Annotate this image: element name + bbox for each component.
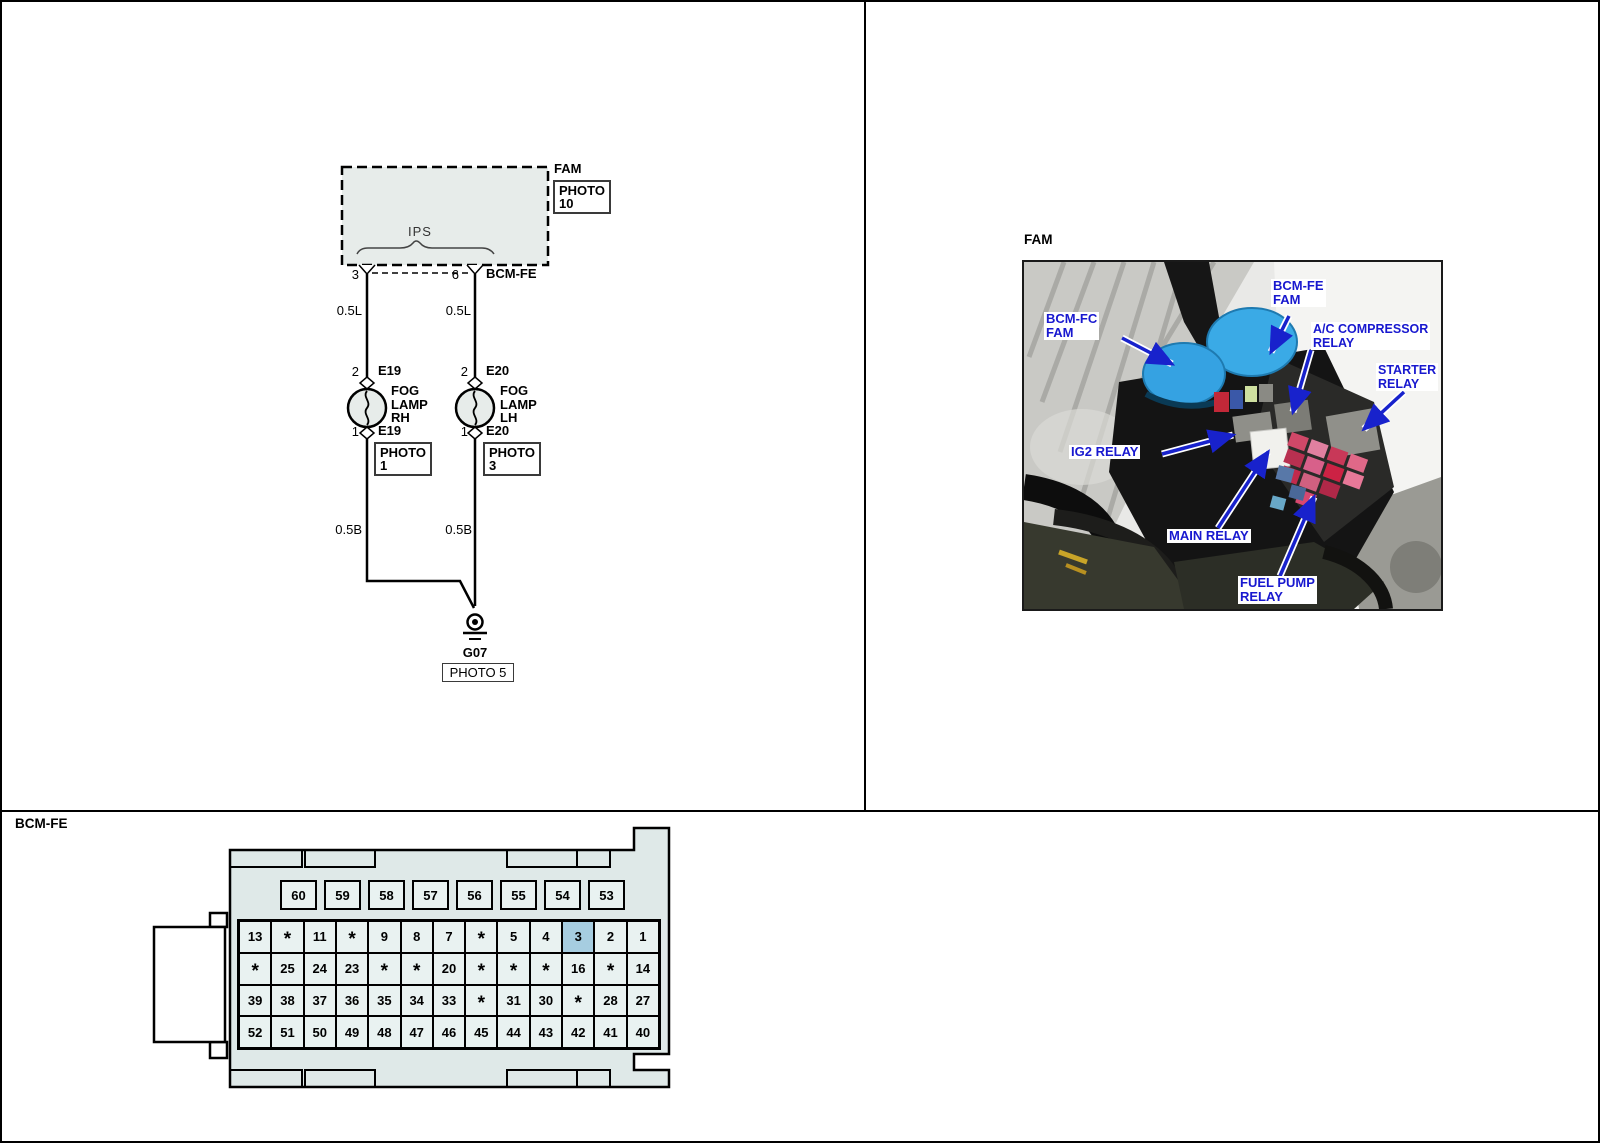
pin-6-number: 6 (437, 268, 459, 282)
pin-24: 24 (304, 953, 336, 985)
bcm-fe-connector-label: BCM-FE (486, 267, 537, 281)
pin-unused: * (401, 953, 433, 985)
pin-9: 9 (368, 921, 400, 953)
pin-unused: * (336, 921, 368, 953)
pin-41: 41 (594, 1016, 626, 1048)
pin-46: 46 (433, 1016, 465, 1048)
wiring-diagram-art (2, 2, 864, 810)
pin6-notch (467, 265, 483, 274)
main-relay-part (1250, 428, 1290, 470)
pin-2: 2 (594, 921, 626, 953)
pin-3: 3 (562, 921, 594, 953)
connector-top-row: 6059585756555453 (280, 880, 625, 910)
wires (367, 274, 475, 608)
fam-photo-ref[interactable]: PHOTO 10 (553, 180, 611, 214)
pin-unused: * (271, 921, 303, 953)
ground-photo-ref[interactable]: PHOTO 5 (442, 663, 514, 682)
wire-label-05l-left: 0.5L (319, 304, 362, 318)
pin-59: 59 (324, 880, 361, 910)
pin-1: 1 (627, 921, 659, 953)
label-bcm-fc-fam: BCM-FCFAM (1044, 312, 1099, 340)
connector-title: BCM-FE (15, 817, 68, 831)
fam-photo-title: FAM (1024, 233, 1053, 247)
pin-11: 11 (304, 921, 336, 953)
pin-49: 49 (336, 1016, 368, 1048)
pin-50: 50 (304, 1016, 336, 1048)
lamp-rh-pin-bottom: 1 (337, 425, 359, 439)
pin-40: 40 (627, 1016, 659, 1048)
pin-13: 13 (239, 921, 271, 953)
lamp-lh-conn-top: E20 (486, 364, 509, 378)
pin-56: 56 (456, 880, 493, 910)
pin-7: 7 (433, 921, 465, 953)
pin-3-number: 3 (337, 268, 359, 282)
pin-unused: * (465, 985, 497, 1017)
label-fuel-pump-relay: FUEL PUMPRELAY (1238, 576, 1317, 604)
pin-4: 4 (530, 921, 562, 953)
pin-34: 34 (401, 985, 433, 1017)
pin-48: 48 (368, 1016, 400, 1048)
pin-42: 42 (562, 1016, 594, 1048)
lamp-lh-pin-bottom: 1 (446, 425, 468, 439)
pin-unused: * (465, 921, 497, 953)
pin-36: 36 (336, 985, 368, 1017)
label-ac-compressor-relay: A/C COMPRESSORRELAY (1311, 322, 1430, 350)
wire-label-05b-left: 0.5B (318, 523, 362, 537)
lamp-rh-conn-top: E19 (378, 364, 401, 378)
pin-unused: * (368, 953, 400, 985)
label-bcm-fe-fam: BCM-FEFAM (1271, 279, 1326, 307)
lamp-rh-photo-ref[interactable]: PHOTO 1 (374, 442, 432, 476)
pin-14: 14 (627, 953, 659, 985)
pin-51: 51 (271, 1016, 303, 1048)
ground-label: G07 (449, 646, 501, 660)
pin-unused: * (465, 953, 497, 985)
lamp-lh-photo-ref[interactable]: PHOTO 3 (483, 442, 541, 476)
pin-23: 23 (336, 953, 368, 985)
ground-symbol (463, 615, 487, 640)
pin-30: 30 (530, 985, 562, 1017)
wire-label-05b-right: 0.5B (428, 523, 472, 537)
pin-16: 16 (562, 953, 594, 985)
fam-photo-panel: FAM (866, 2, 1600, 810)
fam-photo: BCM-FEFAM BCM-FCFAM A/C COMPRESSORRELAY … (1022, 260, 1443, 611)
pin-8: 8 (401, 921, 433, 953)
connector-pin-grid: 13*11*987*54321*252423**20***16*14393837… (237, 919, 661, 1050)
ips-label: IPS (390, 225, 450, 239)
label-main-relay: MAIN RELAY (1167, 529, 1251, 543)
pin-44: 44 (497, 1016, 529, 1048)
pin-54: 54 (544, 880, 581, 910)
lamp-rh-pin-top: 2 (337, 365, 359, 379)
pin-52: 52 (239, 1016, 271, 1048)
pin-unused: * (530, 953, 562, 985)
pin-20: 20 (433, 953, 465, 985)
fam-photo-ref-line2: 10 (559, 197, 605, 210)
service-manual-page: FAM PHOTO 10 IPS 3 6 BCM-FE 0.5L 0.5L 2 … (0, 0, 1600, 1143)
bcm-fe-connector-panel: BCM-FE 6059585756555453 13*11*987*54321*… (2, 812, 1600, 1143)
wiring-diagram-panel: FAM PHOTO 10 IPS 3 6 BCM-FE 0.5L 0.5L 2 … (2, 2, 864, 810)
pin-43: 43 (530, 1016, 562, 1048)
label-ig2-relay: IG2 RELAY (1069, 445, 1140, 459)
lamp-lh-pin-top: 2 (446, 365, 468, 379)
pin-45: 45 (465, 1016, 497, 1048)
lamp-lh-name: FOG LAMP LH (500, 384, 537, 425)
pin-38: 38 (271, 985, 303, 1017)
pin-37: 37 (304, 985, 336, 1017)
pin-39: 39 (239, 985, 271, 1017)
pin-unused: * (562, 985, 594, 1017)
pin-unused: * (239, 953, 271, 985)
pin-unused: * (497, 953, 529, 985)
pin-53: 53 (588, 880, 625, 910)
lamp-rh-conn-bottom: E19 (378, 424, 401, 438)
pin-47: 47 (401, 1016, 433, 1048)
pin-28: 28 (594, 985, 626, 1017)
pin-25: 25 (271, 953, 303, 985)
pin-57: 57 (412, 880, 449, 910)
label-starter-relay: STARTERRELAY (1376, 363, 1438, 391)
lamp-lh-conn-bottom: E20 (486, 424, 509, 438)
pin-27: 27 (627, 985, 659, 1017)
pin-33: 33 (433, 985, 465, 1017)
connector-latch (154, 913, 227, 1058)
ips-fuse-block (342, 167, 548, 265)
pin-35: 35 (368, 985, 400, 1017)
fam-block-label: FAM (554, 162, 581, 176)
lamp-rh-name: FOG LAMP RH (391, 384, 428, 425)
wire-label-05l-right: 0.5L (428, 304, 471, 318)
pin-55: 55 (500, 880, 537, 910)
pin-unused: * (594, 953, 626, 985)
pin-31: 31 (497, 985, 529, 1017)
pin-58: 58 (368, 880, 405, 910)
pin-60: 60 (280, 880, 317, 910)
pin-5: 5 (497, 921, 529, 953)
